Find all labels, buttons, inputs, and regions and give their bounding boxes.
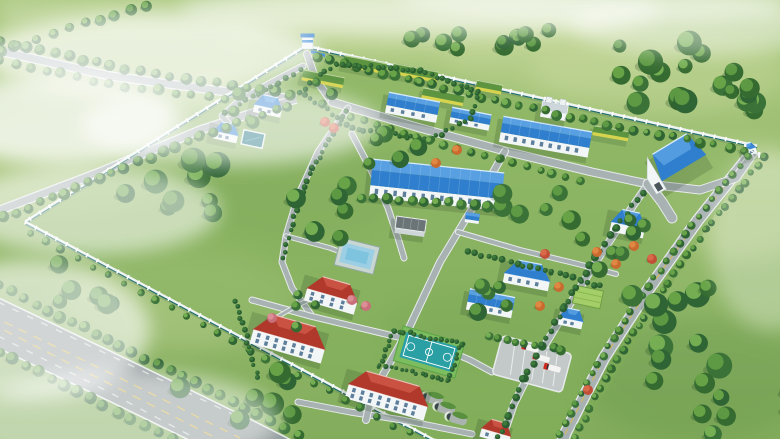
- tree-highlight: [380, 359, 383, 362]
- tree-highlight: [640, 190, 644, 194]
- tree-highlight: [486, 333, 491, 338]
- tree-highlight: [381, 65, 384, 68]
- tree-highlight: [558, 271, 561, 274]
- tree-highlight: [717, 407, 729, 419]
- tree-highlight: [340, 62, 344, 66]
- tree-highlight: [475, 91, 478, 94]
- tree-highlight: [577, 177, 582, 182]
- tree-highlight: [400, 368, 402, 370]
- tree-highlight: [628, 93, 642, 107]
- tree-highlight: [531, 361, 536, 366]
- tree-highlight: [405, 369, 407, 371]
- tree-highlight: [387, 344, 390, 347]
- tree-highlight: [606, 246, 615, 255]
- tree-highlight: [305, 223, 318, 236]
- tree-highlight: [569, 290, 573, 294]
- aerial-site-rendering: [0, 0, 780, 439]
- tree-highlight: [603, 374, 608, 379]
- tree-highlight: [426, 137, 431, 142]
- tree-highlight: [410, 369, 413, 372]
- tree-highlight: [322, 69, 325, 72]
- tree-highlight: [726, 143, 733, 150]
- tree-highlight: [450, 367, 453, 370]
- tree-highlight: [650, 335, 666, 351]
- tree-highlight: [307, 80, 310, 83]
- tree-highlight: [407, 429, 411, 433]
- tree-highlight: [562, 420, 567, 425]
- tree-highlight: [633, 76, 643, 86]
- tree-highlight: [236, 304, 239, 307]
- tree-highlight: [496, 156, 500, 160]
- tree-highlight: [472, 250, 476, 254]
- tree-highlight: [725, 85, 734, 94]
- tree-highlight: [573, 285, 577, 289]
- tree-highlight: [459, 343, 462, 346]
- tree-highlight: [695, 374, 708, 387]
- tree-highlight: [463, 120, 466, 123]
- tree-highlight: [591, 118, 596, 123]
- tree-highlight: [493, 185, 505, 197]
- tree-highlight: [270, 362, 284, 376]
- blue-shed: [465, 212, 480, 224]
- tree-highlight: [566, 114, 572, 120]
- tree-highlight: [509, 259, 512, 262]
- tree-highlight: [516, 387, 520, 391]
- tree-highlight: [383, 347, 386, 350]
- tree-highlight: [452, 363, 455, 366]
- tree-highlight: [515, 261, 519, 265]
- tree-highlight: [423, 70, 426, 73]
- tree-highlight: [492, 96, 497, 101]
- tree-highlight: [511, 205, 523, 217]
- tree-highlight: [645, 283, 650, 288]
- tree-highlight: [422, 336, 425, 339]
- tree-highlight: [524, 163, 529, 168]
- tree-highlight: [245, 333, 248, 336]
- tree-highlight: [279, 423, 286, 430]
- tree-highlight: [548, 169, 554, 175]
- tree-highlight: [475, 279, 485, 289]
- tree-highlight: [641, 315, 646, 320]
- tree-highlight: [152, 296, 157, 301]
- tree-highlight: [446, 379, 448, 381]
- tree-highlight: [705, 426, 716, 437]
- tree-highlight: [457, 346, 460, 349]
- tree-highlight: [450, 339, 453, 342]
- tree-highlight: [304, 179, 308, 183]
- tree-highlight: [326, 55, 332, 61]
- tree-highlight: [594, 361, 599, 366]
- gray-building: [389, 215, 427, 243]
- tree-highlight: [579, 279, 582, 282]
- tree-highlight: [700, 280, 711, 291]
- tree-highlight: [645, 294, 660, 309]
- tree-highlight: [434, 337, 437, 340]
- tree-highlight: [353, 63, 357, 67]
- tree-highlight: [440, 76, 443, 79]
- tree-highlight: [543, 336, 546, 339]
- tree-highlight: [314, 159, 317, 162]
- tree-highlight: [460, 84, 463, 87]
- tree-highlight: [451, 81, 455, 85]
- tree-highlight: [121, 281, 125, 285]
- tree-highlight: [696, 214, 700, 218]
- tree-highlight: [615, 247, 624, 256]
- tree-highlight: [494, 335, 499, 340]
- tree-highlight: [622, 318, 626, 322]
- tree-highlight: [482, 201, 489, 208]
- tree-highlight: [284, 406, 296, 418]
- window: [374, 189, 378, 195]
- tree-highlight: [620, 346, 625, 351]
- tree-highlight: [382, 354, 385, 357]
- tree-highlight: [622, 286, 635, 299]
- tree-highlight: [445, 339, 448, 342]
- tree-highlight: [444, 128, 447, 131]
- tree-highlight: [708, 354, 724, 370]
- tree-highlight: [505, 413, 510, 418]
- tree-highlight: [616, 123, 621, 128]
- tree-highlight: [342, 396, 347, 401]
- tree-highlight: [333, 231, 343, 241]
- tree-highlight: [499, 256, 503, 260]
- tree-highlight: [668, 292, 681, 305]
- tree-highlight: [652, 350, 665, 363]
- tree-highlight: [384, 364, 387, 367]
- tree-highlight: [688, 222, 693, 227]
- tree-highlight: [576, 424, 581, 429]
- tree-highlight: [670, 270, 675, 275]
- tree-highlight: [237, 310, 240, 313]
- tree-highlight: [387, 339, 390, 342]
- tree-highlight: [435, 76, 438, 79]
- tree-highlight: [416, 78, 422, 84]
- plant-tower: [546, 96, 553, 103]
- tree-highlight: [625, 338, 629, 342]
- tree-highlight: [576, 232, 585, 241]
- tree-highlight: [690, 335, 702, 347]
- tree-highlight: [533, 353, 537, 357]
- tree-highlight: [543, 268, 546, 271]
- tree-highlight: [90, 265, 94, 269]
- tree-highlight: [567, 410, 572, 415]
- tree-highlight: [457, 121, 461, 125]
- tree-highlight: [541, 249, 547, 255]
- tree-highlight: [684, 135, 689, 140]
- tree-highlight: [255, 371, 258, 374]
- tree-highlight: [674, 90, 689, 105]
- tree-highlight: [627, 308, 632, 313]
- tree-highlight: [613, 224, 618, 229]
- tree-highlight: [247, 345, 250, 348]
- tree-highlight: [447, 373, 450, 376]
- tree-highlight: [696, 138, 702, 144]
- tree-highlight: [497, 36, 506, 45]
- tree-highlight: [655, 131, 662, 138]
- tree-highlight: [583, 270, 588, 275]
- tree-highlight: [294, 290, 300, 296]
- tree-highlight: [401, 68, 404, 71]
- tree-highlight: [430, 72, 433, 75]
- tree-highlight: [469, 117, 472, 120]
- tree-highlight: [250, 357, 254, 361]
- tree-highlight: [465, 248, 469, 252]
- tree-highlight: [394, 66, 398, 70]
- tree-highlight: [138, 290, 142, 294]
- tree-highlight: [580, 115, 585, 120]
- tree-highlight: [697, 236, 701, 240]
- tree-highlight: [691, 245, 695, 249]
- tree-highlight: [579, 391, 583, 395]
- tree-highlight: [287, 236, 290, 239]
- tree-highlight: [308, 171, 311, 174]
- tree-highlight: [494, 281, 502, 289]
- tree-highlight: [648, 254, 654, 260]
- tree-highlight: [629, 203, 632, 206]
- tree-highlight: [394, 366, 396, 368]
- tree-highlight: [703, 204, 708, 209]
- tree-highlight: [542, 106, 547, 111]
- tree-highlight: [549, 329, 553, 333]
- tree-highlight: [469, 87, 473, 91]
- tree-highlight: [540, 204, 548, 212]
- tree-highlight: [292, 302, 298, 308]
- tree-highlight: [740, 79, 753, 92]
- tree-highlight: [439, 337, 442, 340]
- tree-highlight: [405, 76, 410, 81]
- mist-patch: [80, 85, 380, 165]
- tree-highlight: [570, 274, 574, 278]
- tree-highlight: [566, 299, 570, 303]
- tree-highlight: [400, 130, 405, 135]
- tree-highlight: [238, 316, 241, 319]
- tree-highlight: [413, 134, 418, 139]
- tree-highlight: [287, 189, 299, 201]
- tree-highlight: [626, 226, 636, 236]
- tree-highlight: [532, 342, 536, 346]
- tree-highlight: [592, 262, 602, 272]
- tree-highlight: [519, 375, 524, 380]
- tree-highlight: [605, 343, 609, 347]
- tree-highlight: [636, 323, 640, 327]
- tree-highlight: [520, 340, 525, 345]
- tree-highlight: [658, 268, 662, 272]
- tree-highlight: [563, 272, 567, 276]
- window: [390, 108, 394, 112]
- tree-highlight: [434, 133, 437, 136]
- tree-highlight: [613, 67, 625, 79]
- tree-highlight: [527, 264, 531, 268]
- tree-highlight: [487, 254, 490, 257]
- tree-highlight: [702, 227, 706, 231]
- tree-highlight: [240, 320, 244, 324]
- tree-highlight: [408, 196, 414, 202]
- tree-highlight: [513, 394, 518, 399]
- tree-highlight: [663, 258, 667, 262]
- tree-highlight: [451, 42, 460, 51]
- tree-highlight: [244, 340, 247, 343]
- tree-highlight: [410, 68, 414, 72]
- window: [402, 192, 406, 198]
- tree-highlight: [255, 375, 258, 378]
- tree-highlight: [549, 269, 552, 272]
- tree-highlight: [430, 375, 433, 378]
- tree-highlight: [560, 305, 565, 310]
- tree-highlight: [520, 264, 523, 267]
- tree-highlight: [369, 194, 375, 200]
- tree-highlight: [607, 366, 612, 371]
- tree-highlight: [586, 262, 591, 267]
- tree-highlight: [613, 356, 618, 361]
- window: [411, 112, 415, 116]
- tree-highlight: [502, 421, 507, 426]
- tree-highlight: [294, 430, 301, 437]
- tree-highlight: [644, 129, 648, 133]
- tree-highlight: [432, 158, 438, 164]
- tree-highlight: [556, 346, 562, 352]
- tree-highlight: [515, 103, 520, 108]
- tree-highlight: [262, 355, 268, 361]
- tree-highlight: [556, 431, 561, 436]
- window: [393, 191, 397, 197]
- tree-highlight: [229, 337, 234, 342]
- tree-highlight: [475, 95, 478, 98]
- tree-highlight: [615, 327, 621, 333]
- tree-highlight: [408, 330, 411, 333]
- tree-highlight: [453, 145, 459, 151]
- tree-highlight: [432, 198, 438, 204]
- tree-highlight: [679, 59, 688, 68]
- tree-highlight: [401, 330, 404, 333]
- tree-highlight: [597, 283, 601, 287]
- tree-highlight: [338, 177, 350, 189]
- tree-highlight: [312, 78, 317, 83]
- tree-highlight: [390, 70, 397, 77]
- tree-highlight: [470, 304, 481, 315]
- tree-highlight: [572, 401, 577, 406]
- tree-highlight: [478, 253, 482, 257]
- tree-highlight: [283, 242, 286, 245]
- tree-highlight: [539, 342, 543, 346]
- tree-highlight: [75, 255, 79, 259]
- tree-highlight: [328, 67, 331, 70]
- tree-highlight: [597, 385, 602, 390]
- tree-highlight: [725, 64, 737, 76]
- tree-highlight: [395, 197, 401, 203]
- tree-highlight: [552, 111, 559, 118]
- tree-highlight: [583, 380, 588, 385]
- tree-highlight: [410, 139, 421, 150]
- tree-highlight: [555, 282, 561, 288]
- tree-highlight: [670, 248, 675, 253]
- tree-highlight: [710, 141, 714, 145]
- tree-highlight: [378, 363, 380, 365]
- tree-highlight: [347, 62, 351, 66]
- tree-highlight: [362, 301, 368, 307]
- tree-highlight: [331, 189, 342, 200]
- tree-highlight: [268, 313, 274, 319]
- tree-highlight: [105, 271, 109, 275]
- tree-highlight: [455, 340, 458, 343]
- tree-highlight: [602, 121, 609, 128]
- tree-highlight: [481, 152, 486, 157]
- tree-highlight: [376, 65, 380, 69]
- scene-svg: [0, 0, 780, 439]
- tree-highlight: [694, 405, 706, 417]
- tree-highlight: [357, 194, 363, 200]
- tree-highlight: [504, 336, 509, 341]
- tree-highlight: [550, 343, 556, 349]
- tree-highlight: [388, 65, 392, 69]
- tree-highlight: [310, 165, 313, 168]
- tree-highlight: [551, 319, 555, 323]
- tree-highlight: [390, 365, 392, 367]
- tree-highlight: [501, 300, 509, 308]
- tree-highlight: [428, 80, 434, 86]
- tree-highlight: [536, 301, 542, 307]
- tree-highlight: [473, 104, 476, 107]
- window: [489, 308, 493, 312]
- tree-highlight: [183, 313, 187, 317]
- tree-highlight: [585, 280, 588, 283]
- tree-highlight: [303, 87, 306, 90]
- tree-highlight: [492, 255, 496, 259]
- tree-highlight: [292, 322, 299, 329]
- tree-highlight: [584, 385, 590, 391]
- tree-highlight: [602, 241, 606, 245]
- tree-highlight: [638, 219, 647, 228]
- tree-highlight: [650, 275, 654, 279]
- tree-highlight: [419, 198, 425, 204]
- tree-highlight: [440, 85, 446, 91]
- tree-highlight: [536, 266, 540, 270]
- tree-highlight: [302, 184, 306, 188]
- tree-highlight: [611, 334, 616, 339]
- tree-highlight: [612, 259, 618, 265]
- tree-highlight: [133, 156, 139, 162]
- tree-highlight: [445, 78, 449, 82]
- plant-tower: [559, 99, 566, 106]
- tree-highlight: [591, 282, 595, 286]
- tree-highlight: [590, 370, 594, 374]
- tree-highlight: [251, 363, 253, 365]
- tree-highlight: [676, 261, 681, 266]
- tree-highlight: [283, 250, 286, 253]
- tree-highlight: [201, 322, 205, 326]
- tree-highlight: [233, 299, 236, 302]
- tree-highlight: [600, 353, 605, 358]
- tree-highlight: [357, 403, 362, 408]
- tree-highlight: [552, 186, 562, 196]
- tree-highlight: [524, 369, 528, 373]
- tree-highlight: [289, 228, 292, 231]
- window: [498, 310, 502, 314]
- tree-highlight: [538, 167, 542, 171]
- tree-highlight: [470, 109, 474, 113]
- tree-highlight: [412, 332, 415, 335]
- top-haze: [0, 0, 780, 26]
- tree-highlight: [502, 99, 508, 105]
- tree-highlight: [669, 132, 674, 137]
- tree-highlight: [169, 305, 173, 309]
- tree-highlight: [436, 375, 439, 378]
- tree-highlight: [683, 251, 688, 256]
- tree-highlight: [709, 196, 713, 200]
- tree-highlight: [406, 68, 409, 71]
- tree-highlight: [741, 147, 746, 152]
- tree-highlight: [457, 200, 463, 206]
- tree-highlight: [248, 351, 251, 354]
